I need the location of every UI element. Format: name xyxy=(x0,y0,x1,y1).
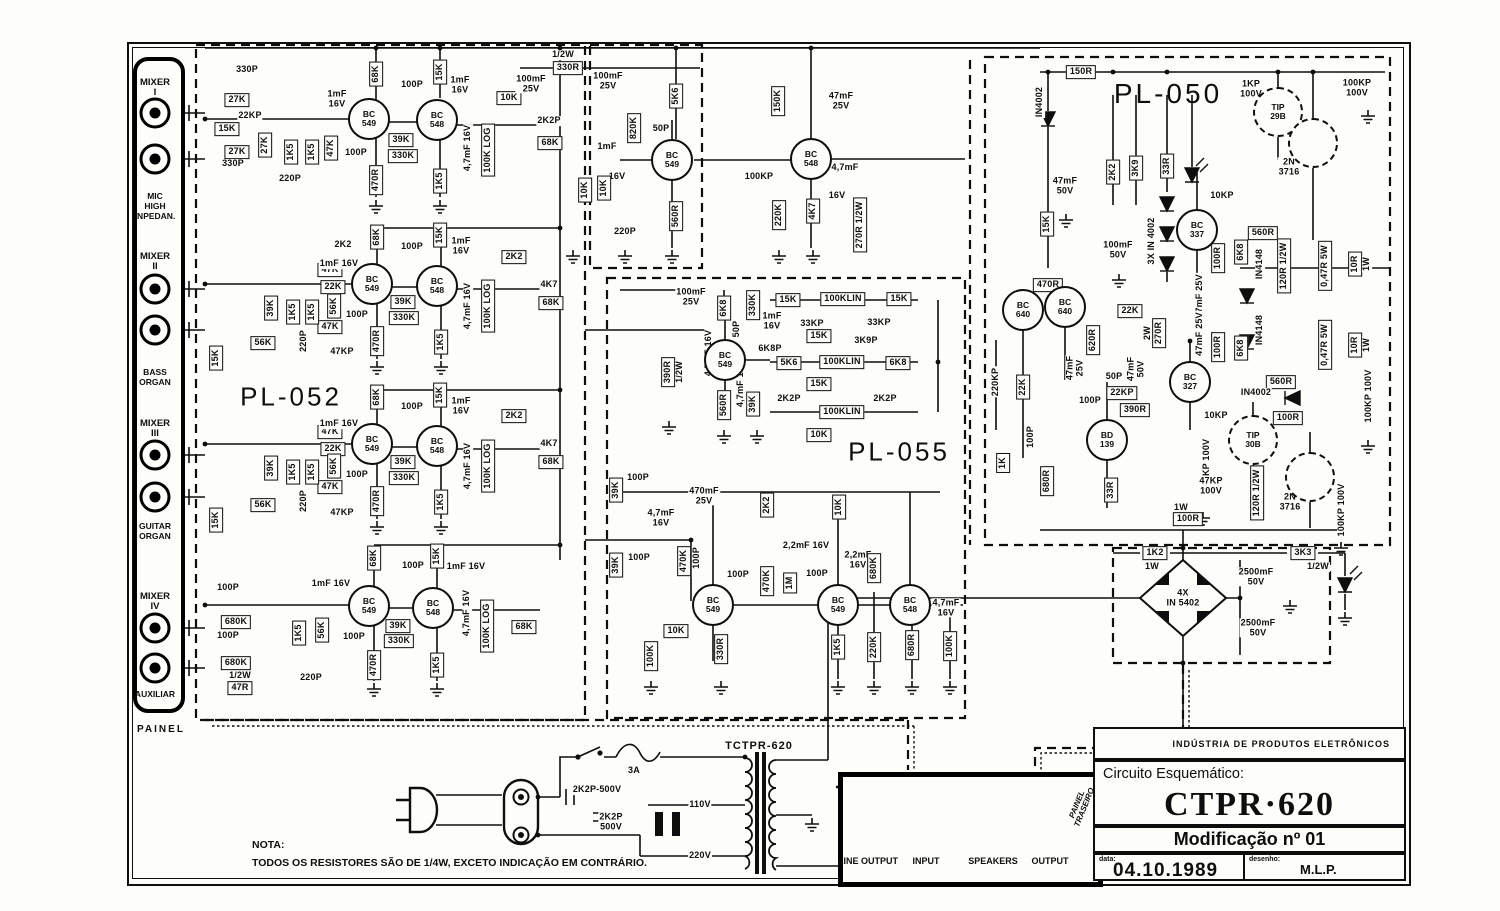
component-label: 100mF 25V xyxy=(675,287,707,306)
component-label: 10K xyxy=(578,177,592,202)
component-label: 56K xyxy=(250,498,275,512)
component-label: 15K xyxy=(433,382,447,407)
component-label: 330K xyxy=(389,471,419,485)
component-label: 1mF 16V xyxy=(450,236,471,255)
component-label: 15K xyxy=(209,507,223,532)
component-label: 100KP xyxy=(744,172,775,182)
component-label: 50P xyxy=(652,124,671,134)
component-label: 100P xyxy=(400,80,424,90)
component-label: 47KP xyxy=(329,508,354,518)
component-label: 2K2P xyxy=(776,394,801,404)
component-label: 100P xyxy=(692,546,702,570)
input-jack xyxy=(140,440,171,471)
component-label: 3K9P xyxy=(853,336,878,346)
transistor-symbol xyxy=(1288,118,1338,168)
component-label: 10R xyxy=(1348,251,1362,276)
input-jack xyxy=(140,144,171,175)
date-value: 04.10.1989 xyxy=(1113,860,1218,882)
component-label: 470R xyxy=(370,326,384,356)
component-label: 4K7 xyxy=(539,280,558,290)
component-label: 39K xyxy=(746,391,760,416)
component-label: 220K xyxy=(867,632,881,662)
input-jack xyxy=(140,315,171,346)
component-label: 270R xyxy=(1152,318,1166,348)
component-label: 1/2W xyxy=(551,50,575,60)
component-label: 22K xyxy=(1117,304,1142,318)
component-label: 1mF 16V xyxy=(326,89,347,108)
component-label: 15K xyxy=(214,122,239,136)
component-label: 330K xyxy=(388,149,418,163)
transistor-symbol xyxy=(1285,452,1335,502)
component-label: 56K xyxy=(327,453,341,478)
component-label: 10K xyxy=(663,624,688,638)
component-label: 39K xyxy=(264,455,278,480)
date-cell: data: 04.10.1989 xyxy=(1095,855,1245,879)
transistor-symbol: BC549 xyxy=(348,98,390,140)
component-label: 330R xyxy=(714,634,728,664)
component-label: 2K2 xyxy=(501,250,526,264)
component-label: 270R 1/2W xyxy=(853,198,867,253)
component-label: 1K xyxy=(996,453,1010,473)
component-label: 100K xyxy=(943,631,957,661)
component-label: 2K2 xyxy=(501,409,526,423)
component-label: 10K xyxy=(806,428,831,442)
transistor-symbol: BC548 xyxy=(416,99,458,141)
component-label: 39K xyxy=(388,133,413,147)
component-label: 100P xyxy=(805,569,829,579)
mixer-source-label: GUITAR ORGAN xyxy=(139,522,171,542)
component-label: 120R 1/2W xyxy=(1277,239,1291,294)
component-label: 680K xyxy=(867,553,881,583)
component-label: 100P xyxy=(726,570,750,580)
component-label: 47K xyxy=(324,135,338,160)
component-label: 4X IN 5402 xyxy=(1166,588,1201,607)
component-label: 3K3 xyxy=(1290,546,1315,560)
component-label: 47KP 100V xyxy=(1198,476,1223,495)
component-label: 22K xyxy=(320,280,345,294)
component-label: 680K xyxy=(221,615,251,629)
component-label: 220P xyxy=(299,673,323,683)
component-label: 47KP xyxy=(329,347,354,357)
component-label: 39K xyxy=(609,477,623,502)
component-label: 1K5 xyxy=(430,652,444,677)
component-label: 1W xyxy=(1144,562,1160,572)
component-label: 2,2mF 16V xyxy=(782,541,830,551)
component-label: 100P xyxy=(216,631,240,641)
component-label: 33KP xyxy=(866,318,891,328)
mixer-input-label: MIXER IV xyxy=(140,592,170,613)
component-label: 68K xyxy=(367,545,381,570)
component-label: 1/2W xyxy=(675,360,685,384)
component-label: 47K xyxy=(317,320,342,334)
component-label: 100P xyxy=(400,402,424,412)
component-label: 3X IN 4002 xyxy=(1147,216,1157,265)
component-label: 33KP xyxy=(799,319,824,329)
component-label: 1mF xyxy=(596,142,617,152)
component-label: 2K2 xyxy=(1106,159,1120,184)
section-label: PL-055 xyxy=(848,437,950,468)
mixer-source-label: MIC HIGH INPEDAN. xyxy=(135,192,176,221)
component-label: 1W xyxy=(1362,256,1372,272)
title-block-main: Circuito Esquemático: CTPR·620 xyxy=(1093,760,1406,826)
component-label: 1mF 16V xyxy=(449,75,470,94)
component-label: 1K5 xyxy=(434,489,448,514)
component-label: 100R xyxy=(1173,512,1203,526)
component-label: 4,7mF 16V xyxy=(463,282,473,330)
component-label: 16V xyxy=(828,191,847,201)
component-label: 56K xyxy=(327,293,341,318)
component-label: 1mF 16V xyxy=(311,579,351,589)
component-label: 68K xyxy=(538,296,563,310)
component-label: 47mF 25V xyxy=(1195,311,1205,357)
component-label: 22KP xyxy=(237,111,262,121)
component-label: 1mF 16V xyxy=(761,311,782,330)
component-label: 68K xyxy=(538,455,563,469)
author-label: desenho: xyxy=(1249,856,1280,863)
component-label: 1K5 xyxy=(831,634,845,659)
component-label: 1mF 16V xyxy=(319,419,359,429)
component-label: 10R xyxy=(1348,332,1362,357)
component-label: 4,7mF xyxy=(830,163,859,173)
component-label: 470R xyxy=(370,486,384,516)
component-label: 4,7mF 16V xyxy=(463,124,473,172)
component-label: 15K xyxy=(430,543,444,568)
component-label: 39K xyxy=(264,295,278,320)
component-label: 33R xyxy=(1104,477,1118,502)
transistor-symbol: BC549 xyxy=(651,139,693,181)
component-label: 15K xyxy=(433,59,447,84)
rear-jack-label: SPEAKERS xyxy=(968,856,1018,866)
component-label: 15K xyxy=(209,345,223,370)
component-label: 33R xyxy=(1160,153,1174,178)
transistor-symbol: BC548 xyxy=(889,584,931,626)
component-label: 470mF 25V xyxy=(688,486,720,505)
component-label: 4,7mF 16V xyxy=(463,442,473,490)
component-label: 100P xyxy=(626,473,650,483)
component-label: 39K xyxy=(390,455,415,469)
component-label: 39K xyxy=(385,619,410,633)
component-label: 100K LOG xyxy=(480,599,494,652)
component-label: 100P xyxy=(400,242,424,252)
component-label: 1K5 xyxy=(434,329,448,354)
component-label: 1K5 xyxy=(433,168,447,193)
section-label: PL-052 xyxy=(240,382,342,413)
component-label: 15K xyxy=(806,377,831,391)
component-label: 3A xyxy=(627,766,641,776)
component-label: 22KP xyxy=(1106,386,1137,400)
component-label: 50P xyxy=(1105,372,1124,382)
component-label: 820K xyxy=(627,113,641,143)
component-label: 1K5 xyxy=(286,299,300,324)
component-label: 220P xyxy=(299,489,309,513)
component-label: 330K xyxy=(384,634,414,648)
component-label: 330P xyxy=(221,159,245,169)
component-label: 68K xyxy=(370,224,384,249)
schematic-sheet: MIXER IMIC HIGH INPEDAN.MIXER IIBASS ORG… xyxy=(0,0,1500,911)
component-label: 680R xyxy=(905,630,919,660)
component-label: 100KLIN xyxy=(819,355,864,369)
transistor-symbol: BC549 xyxy=(817,584,859,626)
component-label: 560R xyxy=(669,201,683,231)
component-label: 470R xyxy=(369,165,383,195)
component-label: 1K5 xyxy=(284,139,298,164)
component-label: 1K5 xyxy=(305,139,319,164)
component-label: 100K LOG xyxy=(481,123,495,176)
component-label: 68K xyxy=(370,384,384,409)
transistor-symbol: BC548 xyxy=(416,425,458,467)
schematic-note: NOTA: TODOS OS RESISTORES SÃO DE 1/4W, E… xyxy=(252,837,647,873)
company-name: INDÚSTRIA DE PRODUTOS ELETRÔNICOS xyxy=(1093,727,1406,760)
component-label: 1K5 xyxy=(305,459,319,484)
transistor-symbol: TIP30B xyxy=(1228,415,1278,465)
component-label: 100P xyxy=(627,553,651,563)
component-label: 1K5 xyxy=(305,299,319,324)
component-label: 100KLIN xyxy=(819,405,864,419)
component-label: 620R xyxy=(1086,325,1100,355)
transistor-symbol: BC548 xyxy=(790,138,832,180)
component-label: 220P xyxy=(299,329,309,353)
component-label: 39K xyxy=(609,552,623,577)
component-label: 1/2W xyxy=(228,671,252,681)
component-label: 1M xyxy=(783,573,797,594)
transistor-symbol: BC640 xyxy=(1044,286,1086,328)
component-label: 56K xyxy=(315,617,329,642)
component-label: 6K8 xyxy=(1234,335,1248,360)
component-label: 1K2 xyxy=(1142,546,1167,560)
component-label: 100P xyxy=(344,148,368,158)
component-label: 680K xyxy=(221,656,251,670)
component-label: 220KP xyxy=(991,367,1001,398)
component-label: 68K xyxy=(369,61,383,86)
transistor-symbol: BC549 xyxy=(692,584,734,626)
author-value: M.L.P. xyxy=(1300,862,1337,877)
component-label: 2K2P xyxy=(536,116,561,126)
component-label: 2K2 xyxy=(333,240,352,250)
component-label: 100K LOG xyxy=(481,279,495,332)
component-label: 47R xyxy=(227,681,252,695)
rear-jack-label: OUTPUT xyxy=(1032,856,1069,866)
component-label: 100KP 100V xyxy=(1342,78,1373,97)
transistor-symbol: BC549 xyxy=(348,585,390,627)
component-label: 120R 1/2W xyxy=(1250,466,1264,521)
component-label: 1mF 16V xyxy=(319,259,359,269)
component-label: 15K xyxy=(775,293,800,307)
component-label: 6K8 xyxy=(885,356,910,370)
input-jack xyxy=(140,613,171,644)
component-label: 2500mF 50V xyxy=(1240,618,1277,637)
component-label: 100P xyxy=(345,310,369,320)
component-label: 220K xyxy=(772,200,786,230)
component-label: IN4002 xyxy=(1035,86,1045,118)
transistor-symbol: BC548 xyxy=(412,587,454,629)
component-label: 100KLIN xyxy=(820,292,865,306)
transistor-symbol: BC549 xyxy=(351,423,393,465)
component-label: IN4002 xyxy=(1240,388,1272,398)
component-label: 1K5 xyxy=(286,459,300,484)
component-label: 100P xyxy=(1026,425,1036,449)
transistor-symbol: BC327 xyxy=(1169,361,1211,403)
component-label: 27K xyxy=(224,145,249,159)
component-label: 100P xyxy=(345,470,369,480)
component-label: 220P xyxy=(613,227,637,237)
component-label: 2K2P xyxy=(872,394,897,404)
component-label: 2K2 xyxy=(760,492,774,517)
rear-jack-label: LINE OUTPUT xyxy=(838,856,898,866)
mixer-source-label: AUXILIAR xyxy=(135,690,175,700)
component-label: 56K xyxy=(250,336,275,350)
mixer-source-label: BASS ORGAN xyxy=(139,368,171,388)
component-label: 110V xyxy=(688,800,711,810)
component-label: 1K5 xyxy=(292,620,306,645)
component-label: 100mF 25V xyxy=(515,74,547,93)
component-label: 470K xyxy=(677,546,691,576)
component-label: 22K xyxy=(1016,374,1030,399)
note-body: TODOS OS RESISTORES SÃO DE 1/4W, EXCETO … xyxy=(252,855,647,873)
author-cell: desenho: M.L.P. xyxy=(1245,855,1404,879)
section-label: TCTPR-620 xyxy=(725,740,793,752)
component-label: 150K xyxy=(771,86,785,116)
component-label: 0,47R 5W xyxy=(1318,320,1332,370)
modification-label: Modificação nº 01 xyxy=(1093,826,1406,853)
mixer-input-label: MIXER I xyxy=(140,78,170,99)
doc-type-label: Circuito Esquemático: xyxy=(1103,766,1244,782)
component-label: 100P xyxy=(1078,396,1102,406)
component-label: 390R xyxy=(1120,403,1150,417)
front-panel-label: PAINEL xyxy=(137,724,185,735)
component-label: 330K xyxy=(389,311,419,325)
transistor-symbol: BC548 xyxy=(416,265,458,307)
component-label: 2K2P 500V xyxy=(598,812,623,831)
transistor-symbol: BC549 xyxy=(704,339,746,381)
note-title: NOTA: xyxy=(252,837,647,855)
component-label: 47mF 25V xyxy=(1065,355,1084,381)
component-label: 4,7mF 16V xyxy=(646,508,675,527)
component-label: 4K7 xyxy=(539,439,558,449)
component-label: IN4148 xyxy=(1255,314,1265,346)
component-label: 10K xyxy=(597,175,611,200)
component-label: 560R xyxy=(717,390,731,420)
component-label: 6K8 xyxy=(1234,239,1248,264)
component-label: 68K xyxy=(537,136,562,150)
component-label: 4K7 xyxy=(806,198,820,223)
input-jack xyxy=(140,653,171,684)
component-label: 470K xyxy=(760,566,774,596)
component-label: 680R xyxy=(1040,466,1054,496)
component-label: 6K8 xyxy=(717,295,731,320)
component-label: 15K xyxy=(806,329,831,343)
input-jack xyxy=(140,98,171,129)
component-label: 15K xyxy=(886,292,911,306)
component-label: 220P xyxy=(278,174,302,184)
component-label: 220V xyxy=(688,851,712,861)
component-label: 27K xyxy=(258,132,272,157)
component-label: 0,47R 5W xyxy=(1318,241,1332,291)
component-label: 47mF 50V xyxy=(1126,356,1145,382)
transistor-symbol: BC337 xyxy=(1176,209,1218,251)
component-label: 100K LOG xyxy=(481,439,495,492)
section-label: PL-050 xyxy=(1114,78,1222,110)
component-label: 10K xyxy=(832,494,846,519)
mixer-input-label: MIXER II xyxy=(140,252,170,273)
component-label: 330K xyxy=(746,290,760,320)
component-label: 1/2W xyxy=(1306,562,1330,572)
component-label: 100KP 100V xyxy=(1337,483,1347,538)
rear-jack-label: INPUT xyxy=(913,856,940,866)
component-label: 1mF 16V xyxy=(450,396,471,415)
component-label: 5K6 xyxy=(776,356,801,370)
component-label: 6K8P xyxy=(757,344,782,354)
component-label: 3K9 xyxy=(1129,155,1143,180)
component-label: 100R xyxy=(1273,411,1303,425)
component-label: 4,7mF 16V xyxy=(462,589,472,637)
mixer-input-label: MIXER III xyxy=(140,419,170,440)
component-label: 330R xyxy=(553,61,583,75)
component-label: 100mF 50V xyxy=(1102,240,1134,259)
component-label: 47mF 50V xyxy=(1052,176,1078,195)
component-label: 47mF 25V xyxy=(828,91,854,110)
component-label: 100P xyxy=(401,561,425,571)
component-label: 4,7mF 16V xyxy=(931,598,960,617)
component-label: 390R xyxy=(661,357,675,387)
component-label: 15K xyxy=(433,222,447,247)
component-label: 560R xyxy=(1248,226,1278,240)
transistor-symbol: BC549 xyxy=(351,263,393,305)
component-label: IN4148 xyxy=(1255,248,1265,280)
model-number: CTPR·620 xyxy=(1095,786,1404,824)
component-label: 68K xyxy=(511,620,536,634)
component-label: 1mF 16V xyxy=(446,562,486,572)
component-label: 10KP xyxy=(1203,411,1228,421)
transistor-symbol: BD139 xyxy=(1086,419,1128,461)
component-label: 27K xyxy=(224,93,249,107)
component-label: 39K xyxy=(390,295,415,309)
component-label: 100K xyxy=(644,641,658,671)
input-jack xyxy=(140,274,171,305)
component-label: 100KP 100V xyxy=(1364,369,1374,424)
component-label: 47K xyxy=(317,480,342,494)
component-label: 15K xyxy=(1040,211,1054,236)
component-label: 1W xyxy=(1362,337,1372,353)
component-label: 2500mF 50V xyxy=(1238,567,1275,586)
input-jack xyxy=(140,482,171,513)
component-label: 100R xyxy=(1211,332,1225,362)
component-label: 100P xyxy=(216,583,240,593)
component-label: 470R xyxy=(367,650,381,680)
component-label: 100mF 25V xyxy=(592,71,624,90)
component-label: 50P xyxy=(732,320,742,339)
component-label: 150R xyxy=(1066,65,1096,79)
component-label: 100R xyxy=(1211,243,1225,273)
component-label: 2K2P-500V xyxy=(572,785,622,795)
title-block-bottom: data: 04.10.1989 desenho: M.L.P. xyxy=(1093,853,1406,881)
component-label: 100P xyxy=(342,632,366,642)
rear-panel-box xyxy=(838,772,1103,887)
transistor-symbol: BC640 xyxy=(1002,289,1044,331)
component-label: 5K6 xyxy=(669,83,683,108)
component-label: 10KP xyxy=(1209,191,1234,201)
component-label: 330P xyxy=(235,65,259,75)
